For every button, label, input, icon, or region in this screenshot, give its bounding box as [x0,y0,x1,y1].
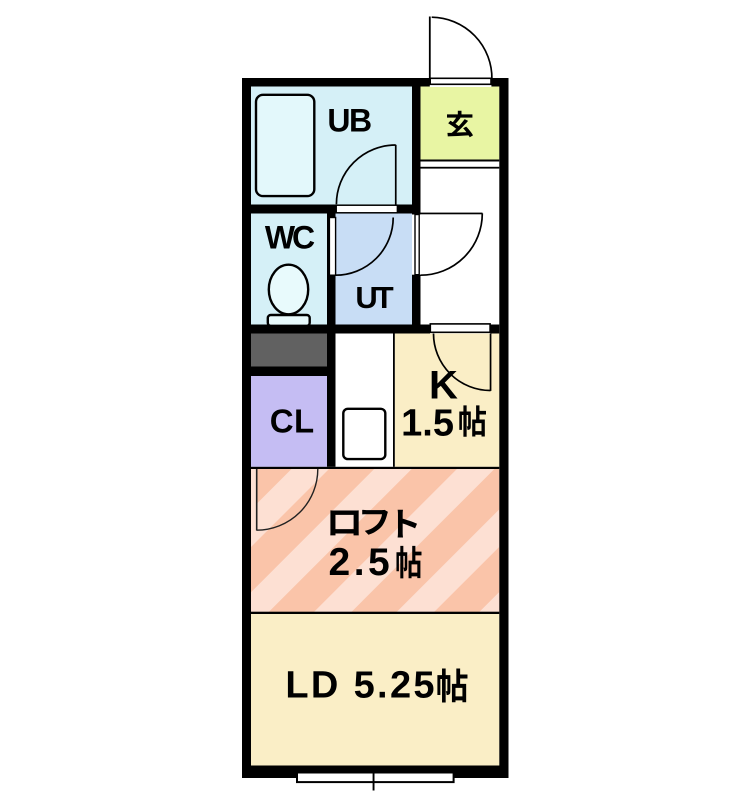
svg-text:UT: UT [355,280,393,315]
svg-text:WC: WC [265,220,315,256]
svg-text:UB: UB [327,103,371,139]
svg-text:CL: CL [270,403,315,440]
svg-text:2.5: 2.5 [329,541,394,584]
svg-text:LD 5.25: LD 5.25 [285,664,436,706]
svg-text:1.5: 1.5 [401,403,454,445]
svg-text:K: K [429,363,458,407]
